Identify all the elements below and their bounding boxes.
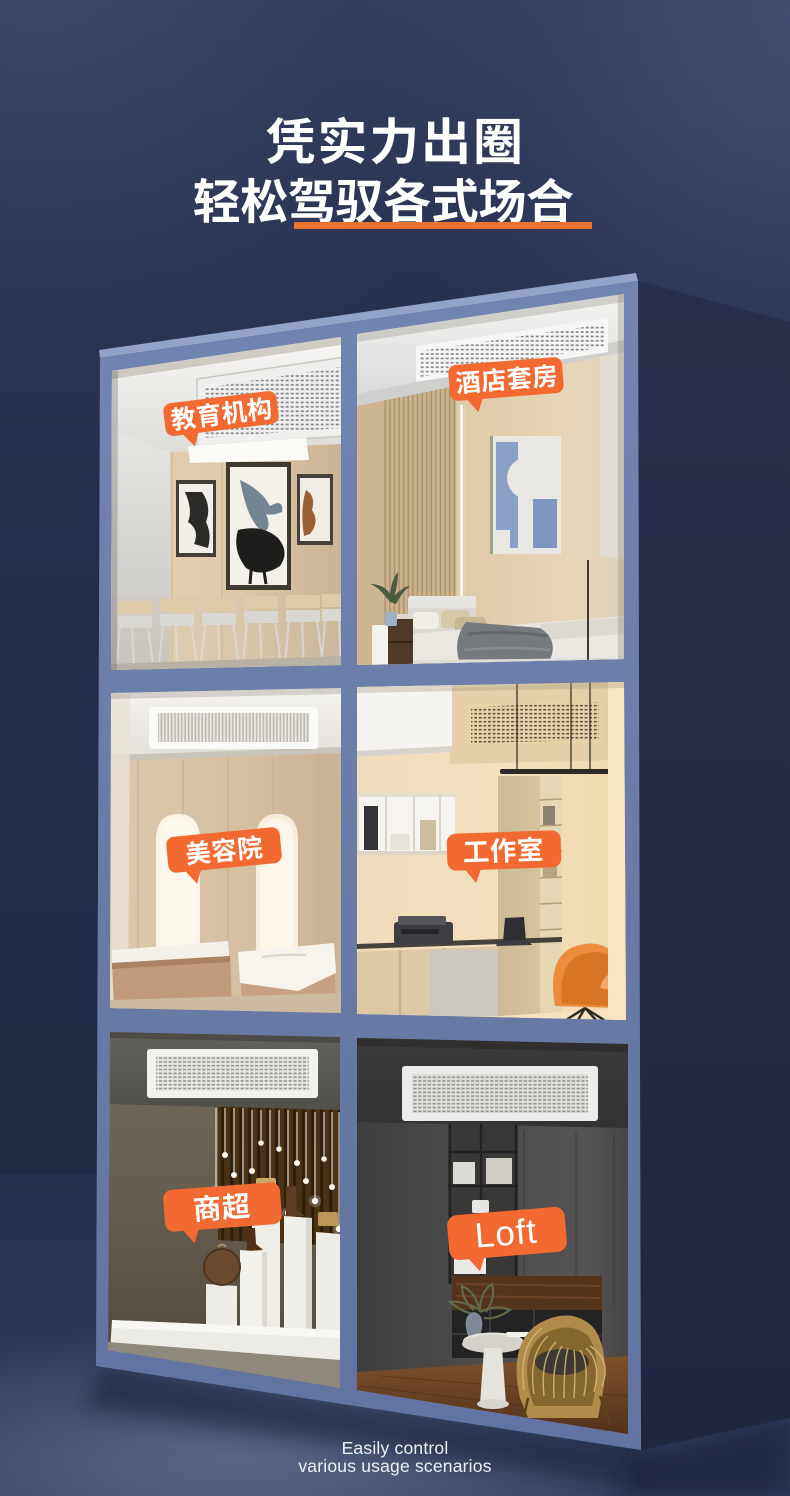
svg-text:various usage scenarios: various usage scenarios [298, 1456, 491, 1476]
svg-text:Easily control: Easily control [342, 1438, 449, 1458]
svg-text:Loft: Loft [473, 1212, 538, 1256]
